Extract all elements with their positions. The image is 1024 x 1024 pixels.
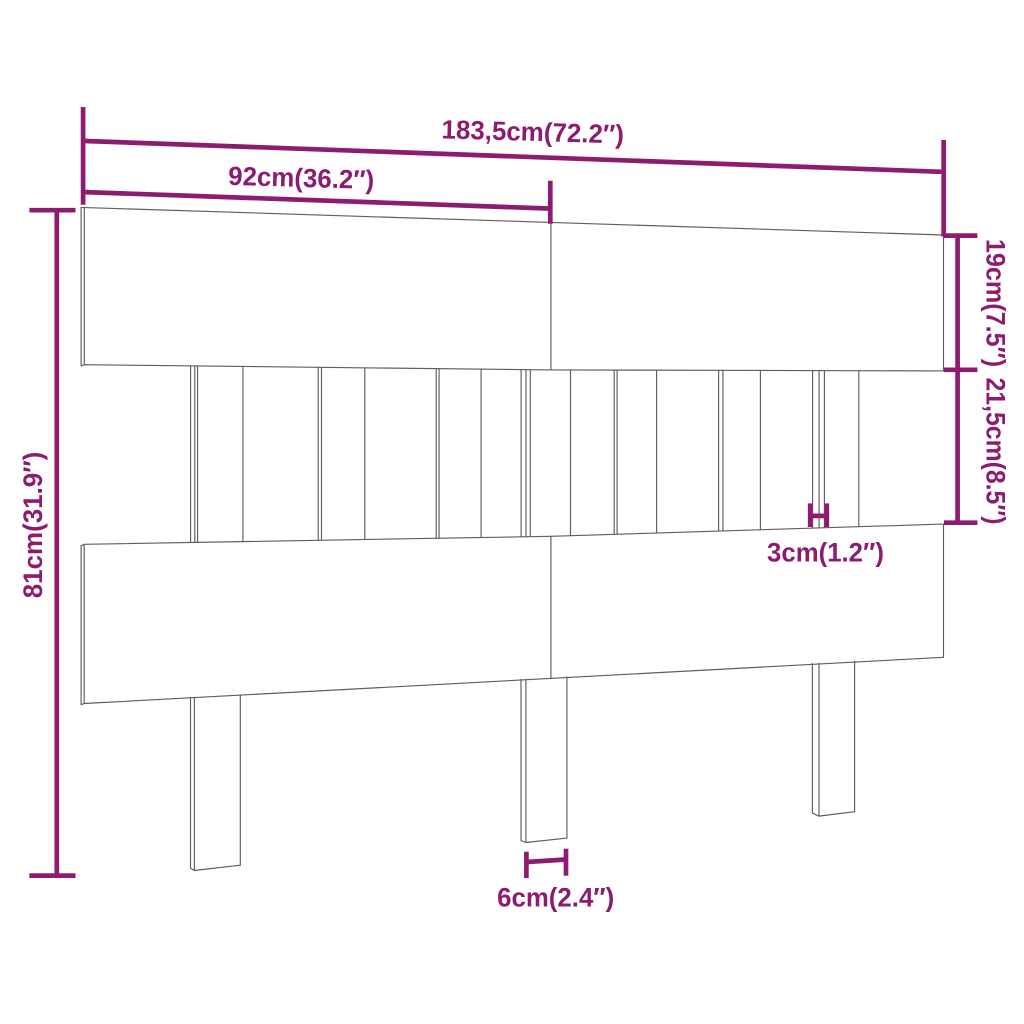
svg-text:21,5cm(8.5″): 21,5cm(8.5″): [980, 377, 1010, 524]
svg-text:92cm(36.2″): 92cm(36.2″): [228, 161, 375, 195]
svg-text:6cm(2.4″): 6cm(2.4″): [497, 883, 614, 913]
svg-text:183,5cm(72.2″): 183,5cm(72.2″): [441, 114, 624, 149]
svg-text:19cm(7.5″): 19cm(7.5″): [980, 239, 1010, 367]
svg-text:81cm(31.9″): 81cm(31.9″): [18, 452, 48, 599]
svg-text:3cm(1.2″): 3cm(1.2″): [767, 538, 884, 568]
